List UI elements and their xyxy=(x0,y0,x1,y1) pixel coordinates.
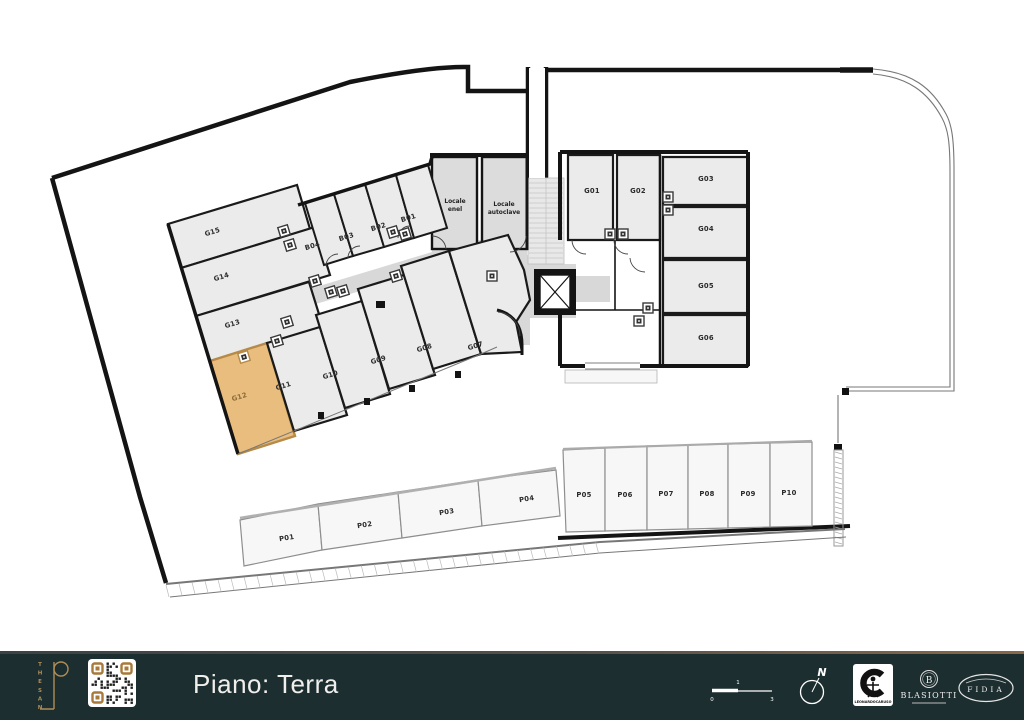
logo-blasiotti-text: BLASIOTTI xyxy=(901,691,958,700)
logo-leonardo-caruso-text: LEONARDOCARUSO xyxy=(855,700,892,704)
unit-label-G05: G05 xyxy=(698,282,714,290)
stall-P06[interactable] xyxy=(605,446,647,531)
logo-blasiotti-initial: B xyxy=(926,676,933,686)
unit-label-P09: P09 xyxy=(740,490,755,498)
footer-bar: THESAN Piano: Terra 0 xyxy=(0,654,1024,720)
unit-label-P05: P05 xyxy=(576,491,591,499)
garage-door-icon xyxy=(238,351,250,363)
logo-fidia: FIDIA xyxy=(958,666,1018,710)
brand-letter: T xyxy=(38,662,42,668)
floorplan-page: G15G14G13G12G11G10G09G08G07B04B03B02B01G… xyxy=(0,0,1024,720)
garage-door-icon xyxy=(605,229,615,239)
stall-P08[interactable] xyxy=(688,444,728,529)
scale-bar: 0 1 3 xyxy=(700,668,785,708)
thesan-logo: THESAN xyxy=(30,656,90,718)
unit-label-G02: G02 xyxy=(630,187,646,195)
compass: N xyxy=(792,662,838,714)
garage-door-icon xyxy=(278,225,290,237)
garage-door-icon xyxy=(325,286,337,298)
unit-label-P10: P10 xyxy=(781,489,796,497)
brand-letter: H xyxy=(38,671,43,677)
floor-plan-canvas: G15G14G13G12G11G10G09G08G07B04B03B02B01G… xyxy=(0,0,1024,654)
garage-door-icon xyxy=(337,285,349,297)
unit-G02[interactable] xyxy=(617,155,660,240)
qr-code xyxy=(88,659,136,707)
brand-letter: N xyxy=(38,705,43,711)
stall-P05[interactable] xyxy=(563,448,605,532)
garage-door-icon xyxy=(487,271,497,281)
locale-autoclave-label: autoclave xyxy=(488,210,520,216)
unit-label-G04: G04 xyxy=(698,225,714,233)
unit-G01[interactable] xyxy=(568,155,613,240)
stall-P09[interactable] xyxy=(728,443,770,528)
garage-door-icon xyxy=(387,226,399,238)
elevator xyxy=(534,269,576,315)
garage-door-icon xyxy=(643,303,653,313)
stall-P07[interactable] xyxy=(647,445,688,530)
scale-tick-0: 0 xyxy=(710,697,714,703)
garage-door-icon xyxy=(284,239,296,251)
garage-door-icon xyxy=(271,335,283,347)
garage-door-icon xyxy=(618,229,628,239)
parking-row-vertical xyxy=(563,441,812,532)
logo-leonardo-caruso: LEONARDOCARUSO xyxy=(853,664,895,710)
garage-door-icon xyxy=(634,316,644,326)
brand-letter: A xyxy=(38,696,43,702)
compass-north-label: N xyxy=(817,666,826,679)
logo-blasiotti: B BLASIOTTI xyxy=(900,662,958,714)
floor-title: Piano: Terra xyxy=(193,669,339,700)
locale-enel-label: enel xyxy=(448,207,462,213)
brand-letter: E xyxy=(38,679,42,685)
stall-P10[interactable] xyxy=(770,442,812,527)
locale-enel-label: Locale xyxy=(444,199,465,205)
unit-label-P07: P07 xyxy=(658,490,673,498)
scale-tick-3: 3 xyxy=(770,697,774,703)
unit-label-G06: G06 xyxy=(698,334,714,342)
unit-label-G01: G01 xyxy=(584,187,600,195)
garage-door-icon xyxy=(663,205,673,215)
logo-fidia-text: FIDIA xyxy=(967,685,1005,694)
garage-door-icon xyxy=(390,270,402,282)
unit-label-P08: P08 xyxy=(699,490,714,498)
garage-door-icon xyxy=(309,275,321,287)
brand-letter: S xyxy=(38,688,42,694)
garage-door-icon xyxy=(663,192,673,202)
garage-door-icon xyxy=(399,228,411,240)
garage-door-icon xyxy=(281,316,293,328)
locale-autoclave-label: Locale xyxy=(493,202,514,208)
unit-label-P06: P06 xyxy=(617,491,632,499)
unit-label-G03: G03 xyxy=(698,175,714,183)
scale-tick-1: 1 xyxy=(736,680,740,686)
